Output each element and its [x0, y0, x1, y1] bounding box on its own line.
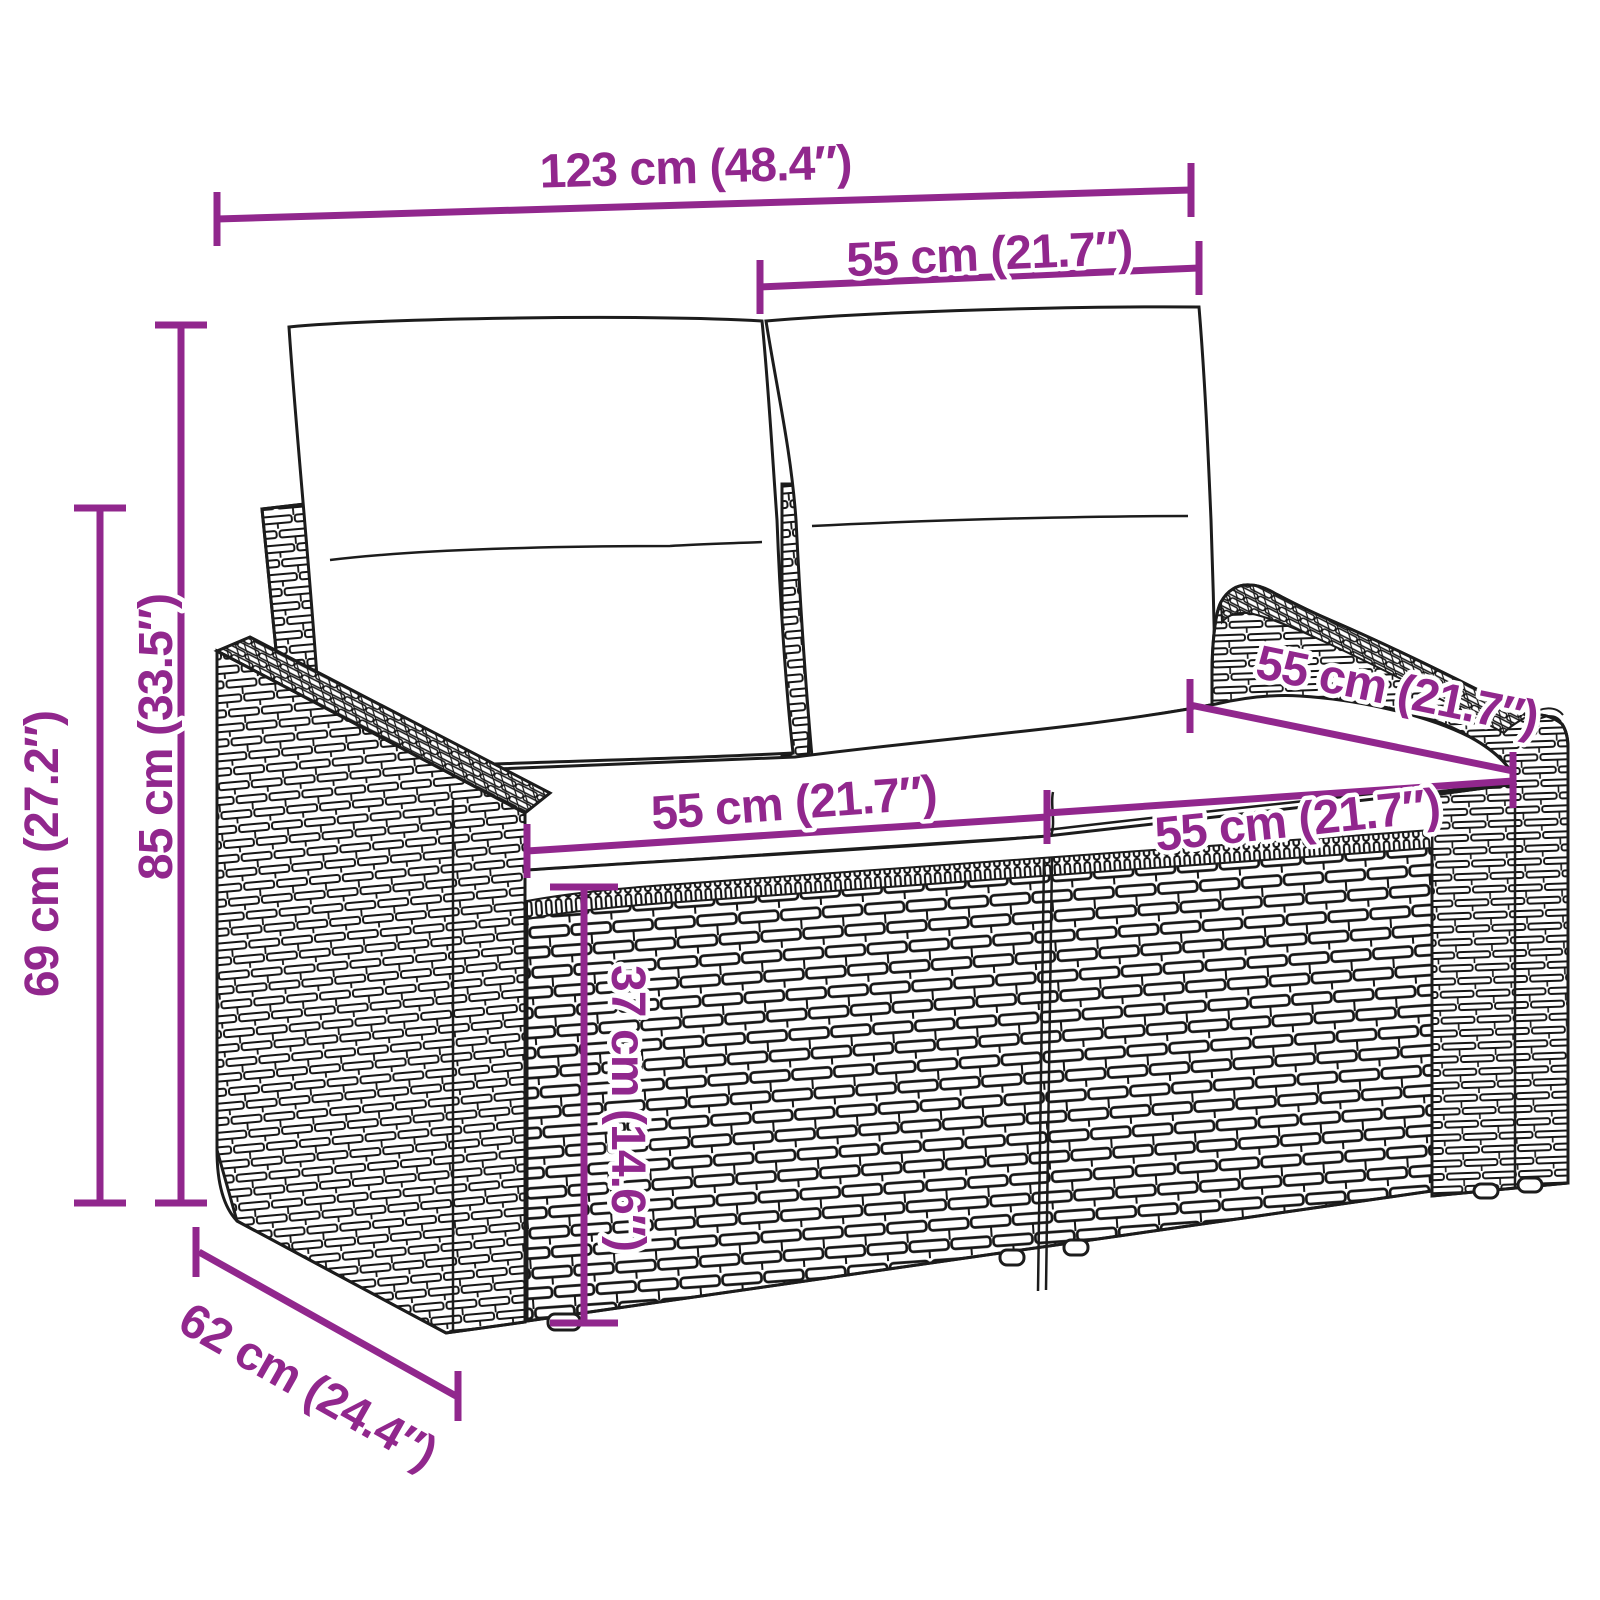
- svg-text:123 cm (48.4″): 123 cm (48.4″): [539, 136, 852, 198]
- svg-text:85 cm (33.5″): 85 cm (33.5″): [130, 594, 183, 880]
- svg-text:69 cm (27.2″): 69 cm (27.2″): [16, 711, 69, 997]
- svg-text:37 cm (14.6″): 37 cm (14.6″): [601, 965, 654, 1251]
